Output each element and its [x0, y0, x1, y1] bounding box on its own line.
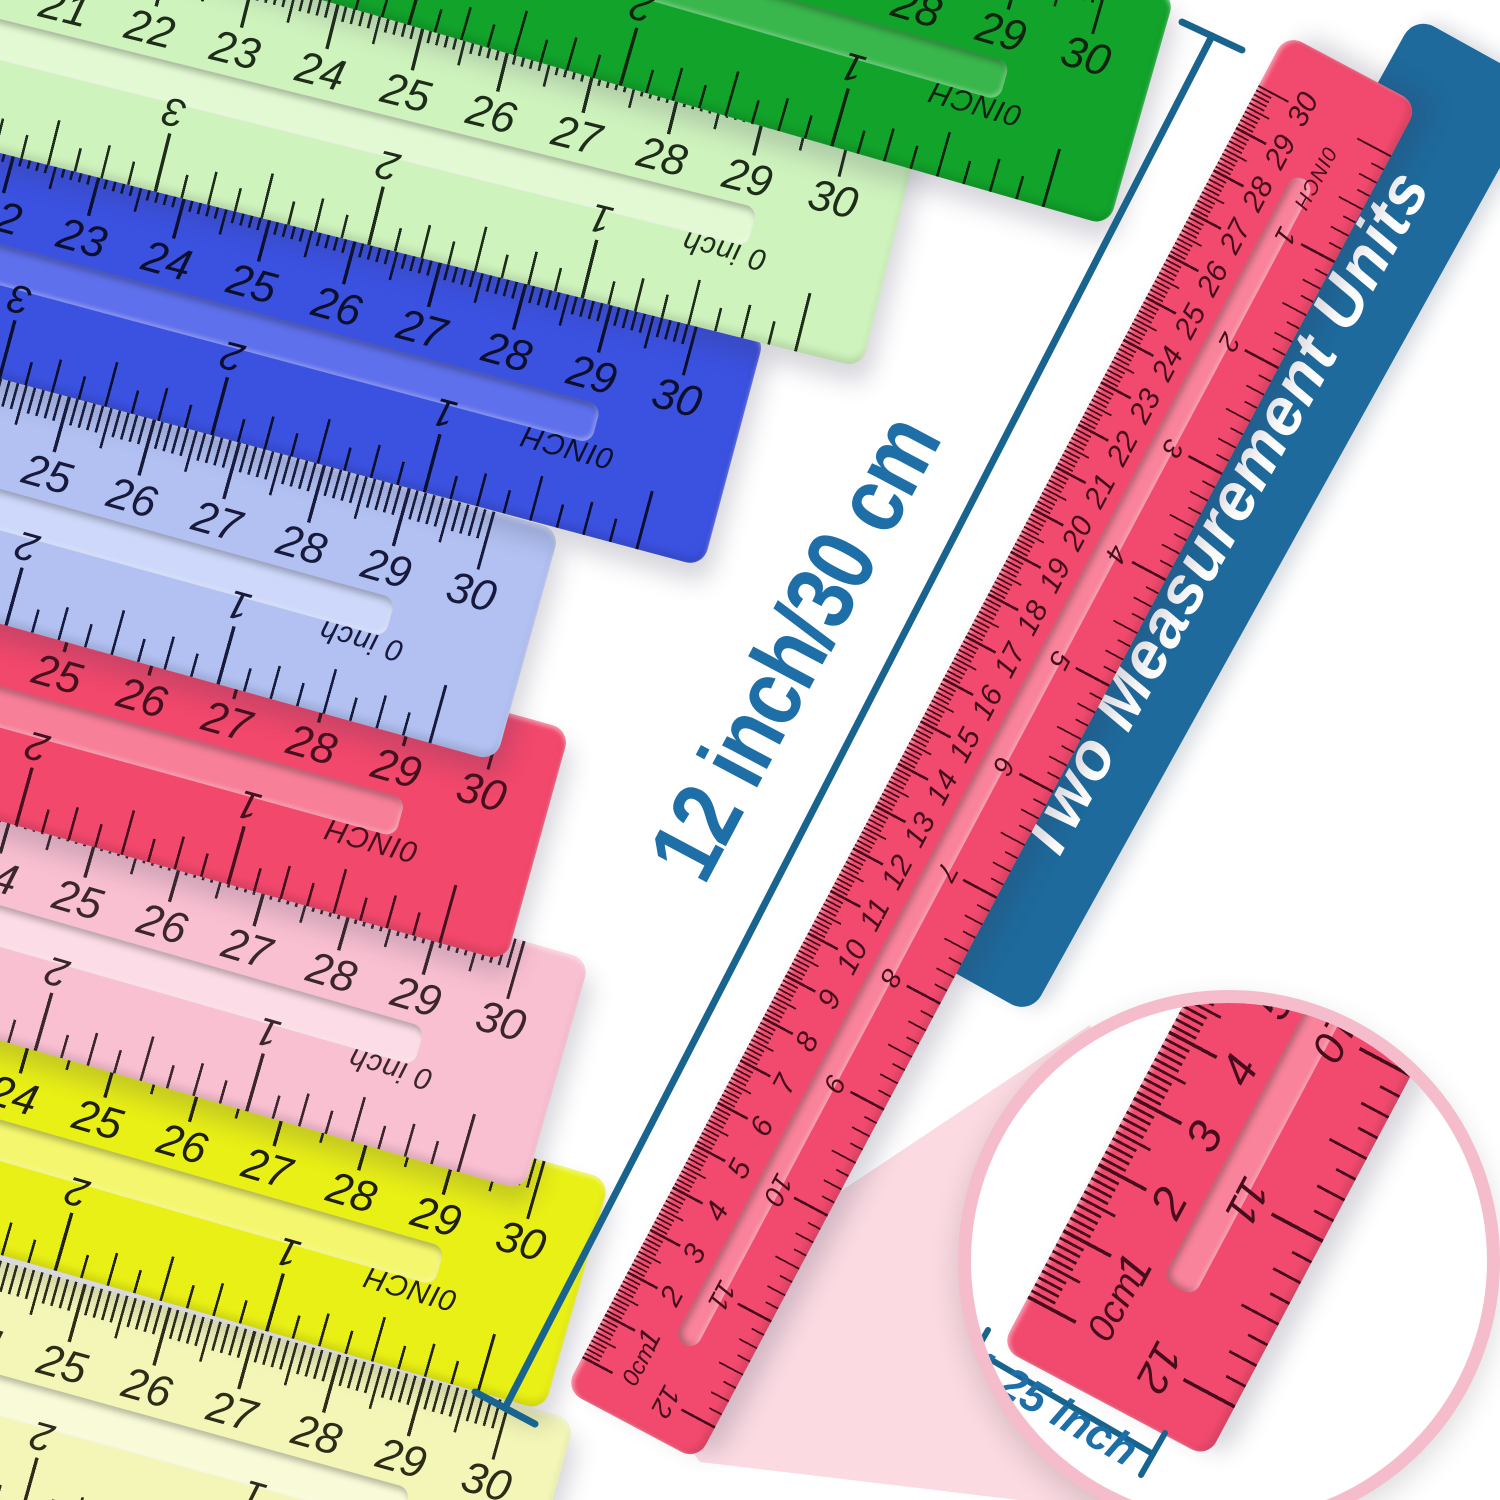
length-bracket-cap-top [1182, 22, 1242, 50]
cm-number: 30 [1282, 88, 1324, 132]
cm-number: 5 [723, 1155, 757, 1184]
cm-number: 8 [791, 1028, 825, 1057]
product-image-canvas: Two Measurement Units 12 inch/30 cm 1234… [0, 0, 1500, 1500]
cm-number: 9 [813, 985, 847, 1014]
cm-number: 2 [655, 1282, 689, 1311]
cm-number: 6 [745, 1113, 779, 1142]
magnifier-circle: 1234591011120INCH0cm 1.25 inch [958, 990, 1500, 1500]
width-bracket-cap-right [1141, 1433, 1165, 1475]
cm-number: 3 [678, 1240, 712, 1269]
cm-number: 7 [768, 1070, 802, 1099]
inch-number: 12 [646, 1381, 685, 1422]
length-bracket-cap-bottom [475, 1392, 535, 1424]
cm-number: 4 [700, 1197, 734, 1226]
